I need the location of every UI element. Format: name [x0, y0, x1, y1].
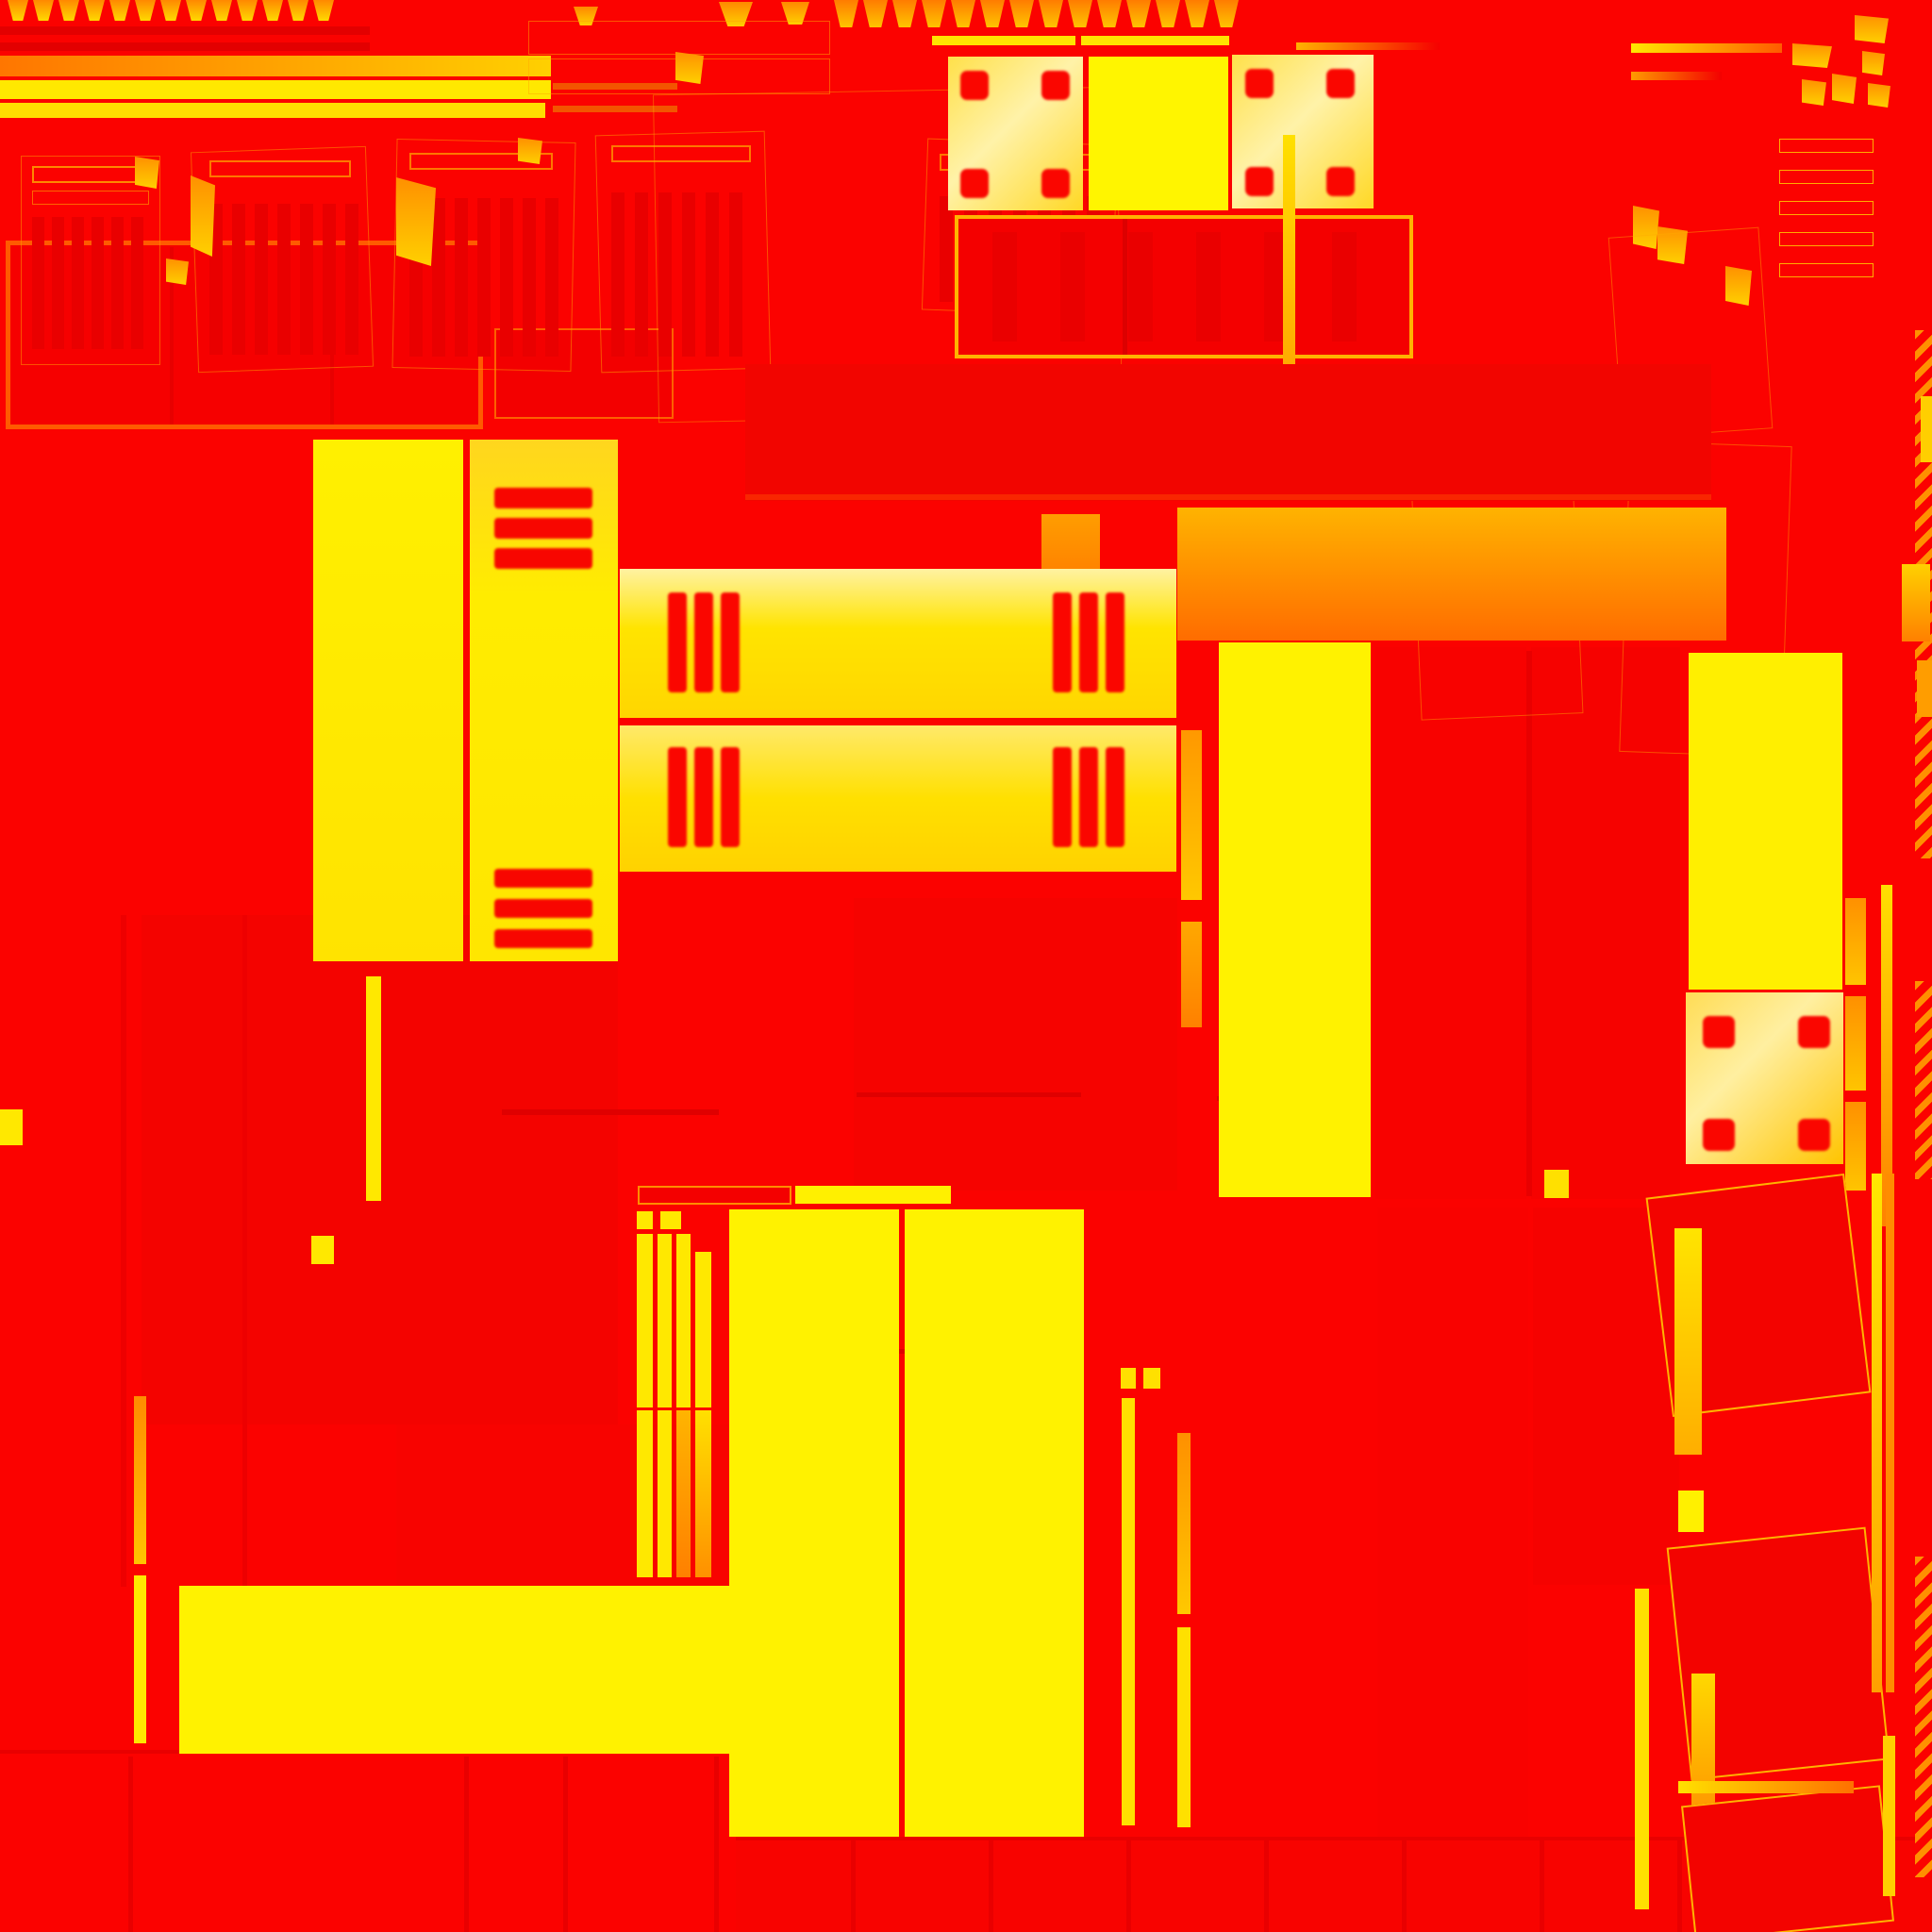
teeth-row-left-4 [109, 0, 130, 21]
teeth-row-center-1 [863, 0, 888, 27]
fence-3-ribs-4 [500, 198, 513, 357]
topright-wedge-6 [1868, 83, 1890, 108]
slab-1-bars-left-1 [694, 592, 713, 692]
bar-yellow-top-1 [0, 80, 551, 99]
barcode-lower-3 [676, 1410, 691, 1577]
plate-d-squares-top-0 [1703, 1016, 1735, 1048]
outlined-box-below-tiles-ribs-1 [1060, 232, 1085, 341]
teeth-row-left-3 [84, 0, 105, 21]
teeth-row-center-0 [834, 0, 858, 27]
square-right-of-cols-1 [1121, 1368, 1136, 1389]
slab-2-bars-left-2 [721, 747, 740, 847]
barcode-lower-4 [695, 1410, 711, 1577]
orange-strip-1 [1181, 730, 1202, 900]
bl-slab [179, 1586, 736, 1754]
outlined-box-below-tiles-ribs-0 [992, 232, 1017, 341]
teeth-row-center-11 [1156, 0, 1180, 27]
teeth-row-center-10 [1126, 0, 1151, 27]
tile-plate-a-squares-bottom-0 [960, 169, 989, 198]
teeth-row-center-6 [1009, 0, 1034, 27]
fence-3-ribs-6 [545, 198, 558, 357]
topright-outline-bars-1 [1779, 170, 1874, 184]
teeth-row-center-13 [1214, 0, 1239, 27]
column-b-bars-bottom-2 [494, 929, 592, 948]
bl-strip-orange [134, 1396, 146, 1564]
fence-3-ribs-1 [432, 198, 445, 357]
fence-1-hbar-2 [32, 191, 149, 205]
zipper-strip-2 [1915, 981, 1932, 1179]
fence-2-ribs-1 [232, 204, 245, 355]
wedge-2 [191, 175, 215, 257]
tile-plate-c-squares-bottom-0 [1245, 167, 1274, 196]
br-strip-2 [1886, 1174, 1894, 1692]
outlined-box-below-tiles-ribs-3 [1196, 232, 1221, 341]
teeth-row-center-8 [1068, 0, 1092, 27]
fence-2-hbar [209, 160, 351, 177]
topright-outline-bars-4 [1779, 263, 1874, 277]
dark-band-edge [745, 494, 1711, 500]
fence-1-ribs-1 [52, 217, 64, 349]
tile-plate-c-squares-top-1 [1326, 69, 1355, 98]
bc-outlined-bar [638, 1186, 791, 1205]
teeth-row-center-4 [951, 0, 975, 27]
seam-v-bl-2 [464, 1757, 469, 1932]
bar-above-tile-2 [1081, 36, 1229, 45]
outlined-box-below-tiles-ribs-5 [1332, 232, 1357, 341]
stroke-dark-2 [857, 1092, 1081, 1097]
teeth-row-center-7 [1039, 0, 1063, 27]
bl-small-square [311, 1236, 334, 1264]
seam-v-bottom-0 [851, 1840, 856, 1932]
panel-right-col-1 [1375, 647, 1526, 1199]
strip-yellow-mid [1177, 1627, 1191, 1827]
barcode-square-1 [637, 1211, 653, 1229]
bar-above-tile-3 [1296, 42, 1440, 50]
teeth-row-left-12 [313, 0, 334, 21]
bar-above-tile-1 [932, 36, 1075, 45]
fence-1-hbar-1 [32, 166, 149, 183]
teeth-row-center-2 [892, 0, 917, 27]
plate-d-strip-3 [1845, 1102, 1866, 1191]
topright-outline-bars-0 [1779, 139, 1874, 153]
barcode-lower-1 [637, 1410, 653, 1577]
outlined-bar-top-1 [528, 21, 830, 55]
frame-gradient-hbar [1678, 1781, 1854, 1793]
wedge-1 [135, 157, 159, 189]
topright-wedge-2 [1855, 15, 1889, 43]
tile-plate-a-squares-top-1 [1041, 71, 1070, 100]
topright-line-2 [1631, 72, 1722, 80]
teeth-row-left-6 [160, 0, 181, 21]
seam-v-bottom-6 [1677, 1840, 1682, 1932]
column-b-bars-top-0 [494, 488, 592, 508]
fence-2-ribs-3 [277, 204, 291, 355]
seam-v-bl-1 [128, 1757, 133, 1932]
slab-2-bars-left-0 [668, 747, 687, 847]
topright-wedge-4 [1802, 79, 1826, 106]
stroke-dark-1 [502, 1109, 719, 1115]
teeth-row-center-9 [1097, 0, 1122, 27]
column-b-bars-top-2 [494, 548, 592, 569]
topright-line-1 [1631, 43, 1782, 53]
zipper-strip-3 [1915, 1557, 1932, 1877]
bar-yellow-top-2 [0, 103, 545, 118]
slab-1-bars-right-1 [1079, 592, 1098, 692]
bl-thin-line [366, 976, 381, 1201]
edge-strip-2 [1902, 564, 1930, 641]
topright-outline-bars-3 [1779, 232, 1874, 246]
seam-v-bottom-4 [1402, 1840, 1407, 1932]
slab-1-bars-right-0 [1053, 592, 1072, 692]
slab-1-bars-left-2 [721, 592, 740, 692]
plate-d-squares-bottom-1 [1798, 1119, 1830, 1151]
wedge-4 [396, 177, 436, 266]
seam-v-left-2 [242, 915, 247, 1587]
wedge-5 [518, 138, 542, 164]
column-bl-left [729, 1209, 899, 1837]
frame-3 [1681, 1785, 1894, 1932]
seam-v-bl-4 [714, 1757, 719, 1932]
seam-v-midright [1526, 651, 1532, 1196]
slab-2-bars-left-1 [694, 747, 713, 847]
slab-1-bars-left-0 [668, 592, 687, 692]
barcode-upper-3 [676, 1234, 691, 1407]
teeth-row-left-7 [186, 0, 207, 21]
fence-3-ribs-5 [523, 198, 536, 357]
teeth-row-left-9 [237, 0, 258, 21]
square-right-of-cols-2 [1143, 1368, 1160, 1389]
outlined-box-below-tiles-seam [1123, 219, 1127, 355]
teeth-row-left-8 [211, 0, 232, 21]
edge-strip-1 [1921, 396, 1932, 462]
fence-2-ribs-4 [300, 204, 313, 355]
column-b-bars-bottom-1 [494, 899, 592, 918]
barcode-upper-4 [695, 1252, 711, 1407]
teeth-row-center-3 [922, 0, 946, 27]
teeth-row-left-10 [262, 0, 283, 21]
tile-plate-a-squares-top-0 [960, 71, 989, 100]
teeth-row-left-1 [33, 0, 54, 21]
tile-plate-b [1089, 57, 1228, 210]
column-d [1689, 653, 1842, 990]
bc-yellow-bar [795, 1186, 951, 1204]
br-strip-1 [1872, 1174, 1882, 1692]
wedge-6 [675, 52, 704, 84]
seam-v-left-1 [121, 915, 126, 1587]
fence-4-ribs-0 [611, 192, 625, 357]
column-bl-right [905, 1209, 1084, 1837]
barcode-square-2 [660, 1211, 681, 1229]
fence-1-ribs-3 [92, 217, 104, 349]
seam-v-bottom-2 [1126, 1840, 1131, 1932]
teeth-row-left-11 [288, 0, 308, 21]
column-a [313, 440, 463, 961]
stripe-dark-1 [0, 26, 370, 35]
br-strip-3 [1883, 1736, 1895, 1896]
orange-strip-2 [1181, 922, 1202, 1027]
fence-1-ribs-2 [72, 217, 84, 349]
teeth-row-left-2 [58, 0, 79, 21]
frame-1-square [1678, 1491, 1704, 1532]
orange-banner [1177, 508, 1726, 641]
plate-d-strip-1 [1845, 898, 1866, 985]
outlined-box-below-tiles-ribs-2 [1128, 232, 1153, 341]
fence-1-ribs-4 [111, 217, 124, 349]
tile-plate-a-squares-bottom-1 [1041, 169, 1070, 198]
seam-v-bottom-5 [1540, 1840, 1544, 1932]
fence-4-ribs-1 [635, 192, 648, 357]
barcode-upper-2 [658, 1234, 672, 1407]
barcode-upper-1 [637, 1234, 653, 1407]
fence-1-ribs-0 [32, 217, 44, 349]
fence-3-ribs-2 [455, 198, 468, 357]
bar-orange-top [0, 56, 551, 76]
strip-orange-mid [1177, 1433, 1191, 1614]
plate-d-squares-bottom-0 [1703, 1119, 1735, 1151]
topright-wedge-1 [1792, 43, 1832, 68]
strip-right-of-cols [1122, 1398, 1135, 1825]
topright-outline-bars-2 [1779, 201, 1874, 215]
teeth-row-left-0 [8, 0, 28, 21]
stripe-dark-2 [0, 42, 370, 51]
panel-under-slab [854, 898, 1177, 1191]
plate-d-strip-2 [1845, 996, 1866, 1091]
square-near-colc [1544, 1170, 1569, 1198]
column-b-bars-bottom-0 [494, 869, 592, 888]
bc-vstrip [1635, 1589, 1649, 1909]
fence-2-ribs-6 [345, 204, 358, 355]
teeth-row-left-5 [135, 0, 156, 21]
teeth-row-center-5 [980, 0, 1005, 27]
wedge-3 [166, 258, 189, 285]
edge-strip-3 [1917, 660, 1932, 717]
slab-2-bars-right-1 [1079, 747, 1098, 847]
dark-band [745, 364, 1711, 501]
barcode-lower-2 [658, 1410, 672, 1577]
texture-atlas [0, 0, 1932, 1932]
topright-wedge-5 [1832, 74, 1857, 104]
slab-1-bars-right-2 [1106, 592, 1124, 692]
seam-v-bottom-3 [1264, 1840, 1269, 1932]
column-b-bars-top-1 [494, 518, 592, 539]
fence-1-ribs-5 [131, 217, 143, 349]
frame-1-bar [1674, 1228, 1702, 1455]
slab-2-bars-right-0 [1053, 747, 1072, 847]
topright-wedge-3 [1862, 51, 1885, 75]
column-c [1219, 642, 1371, 1197]
tile-plate-c-squares-bottom-1 [1326, 167, 1355, 196]
fence-2-ribs-5 [323, 204, 336, 355]
left-edge-bar [0, 1109, 23, 1145]
seam-v-bottom-1 [989, 1840, 993, 1932]
seam-v-bl-3 [563, 1757, 568, 1932]
panel-br-1 [1377, 1207, 1528, 1840]
bl-strip-yellow [134, 1575, 146, 1743]
fence-3-ribs-3 [477, 198, 491, 357]
plate-d-squares-top-1 [1798, 1016, 1830, 1048]
tile-plate-c-squares-top-0 [1245, 69, 1274, 98]
fence-2-ribs-2 [255, 204, 268, 355]
teeth-row-center-12 [1185, 0, 1209, 27]
slab-2-bars-right-2 [1106, 747, 1124, 847]
